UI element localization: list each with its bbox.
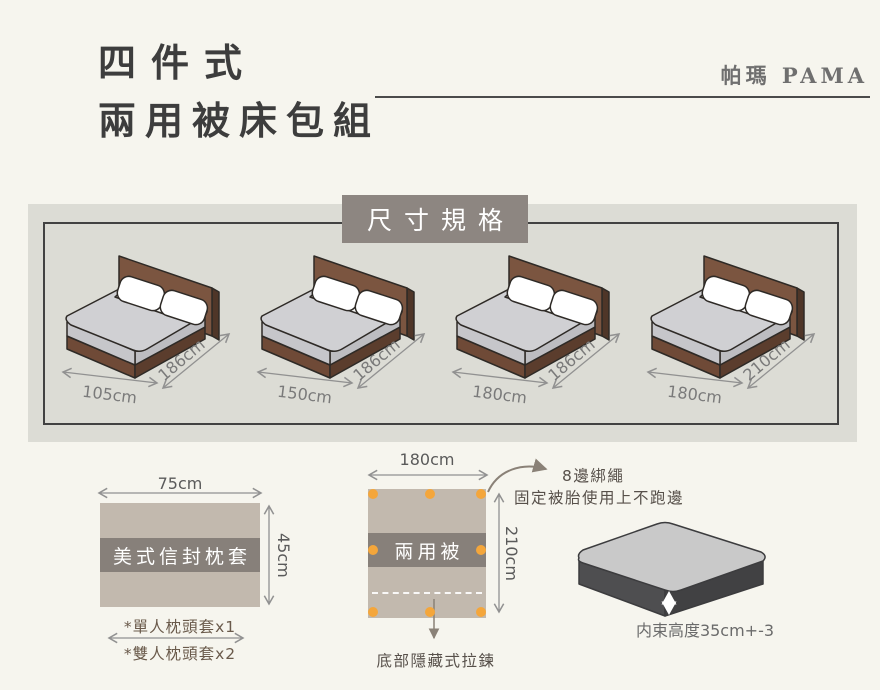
header-divider [375,96,870,98]
tie-dot [476,607,486,617]
pillow-height-label: 45cm [274,503,293,607]
quilt-width-label: 180cm [368,450,486,469]
tie-dot [368,545,378,555]
pillow-width-arrow [96,488,264,498]
brand-logo: 帕瑪 PAMA [721,60,868,90]
bed-diagram-king: 180cm 210cm [642,250,837,410]
pillow-height-arrow [264,503,274,607]
quilt-height-label: 210cm [502,491,521,615]
tie-dot [368,607,378,617]
bed-diagram-queen: 180cm 186cm [447,250,642,410]
page-title: 四件式 兩用被床包組 [98,34,380,150]
tie-dot [425,607,435,617]
mattress-height-note: 内束高度35cm+-3 [620,617,790,641]
quilt-width-arrow [366,470,490,480]
quilt-zipper-dashline [372,592,482,594]
bed-width-label: 180cm [666,382,723,408]
page-title-line2: 兩用被床包組 [98,92,380,150]
page-title-line1: 四件式 [98,34,380,92]
tie-callout-desc: 固定被胎使用上不跑邊 [514,486,684,508]
tie-dot [425,489,435,499]
bed-width-label: 150cm [276,382,333,408]
tie-dot [368,489,378,499]
quilt-name-band: 兩用被 [368,533,486,567]
pillow-name-band: 美式信封枕套 [100,538,260,572]
tie-dot [476,489,486,499]
bed-width-label: 105cm [81,382,138,408]
tie-callout-title: 8邊綁繩 [562,464,624,486]
tie-dot [476,545,486,555]
zipper-pointer-arrow [427,597,441,647]
bed-diagram-single: 105cm 186cm [57,250,252,410]
zipper-label: 底部隱藏式拉鍊 [366,649,506,671]
pillow-note-double: *雙人枕頭套x2 [95,642,265,664]
mattress-illustration [565,516,780,620]
bed-width-label: 180cm [471,382,528,408]
section-heading: 尺寸規格 [342,195,528,243]
infographic-page: 四件式 兩用被床包組 帕瑪 PAMA 尺寸規格 105cm 186cm 150c… [0,0,880,690]
bed-diagram-double: 150cm 186cm [252,250,447,410]
